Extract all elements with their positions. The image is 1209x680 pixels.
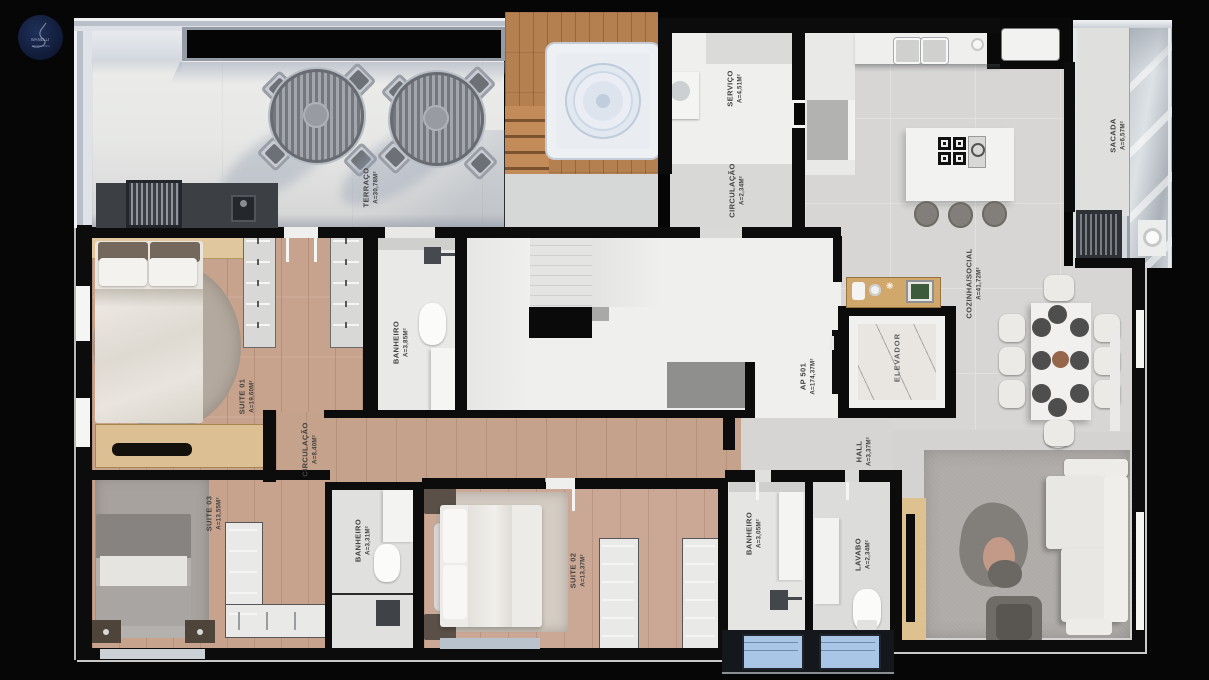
svg-text:WANELLI: WANELLI xyxy=(31,37,49,42)
svg-text:IMOBILIARIA: IMOBILIARIA xyxy=(32,44,50,48)
